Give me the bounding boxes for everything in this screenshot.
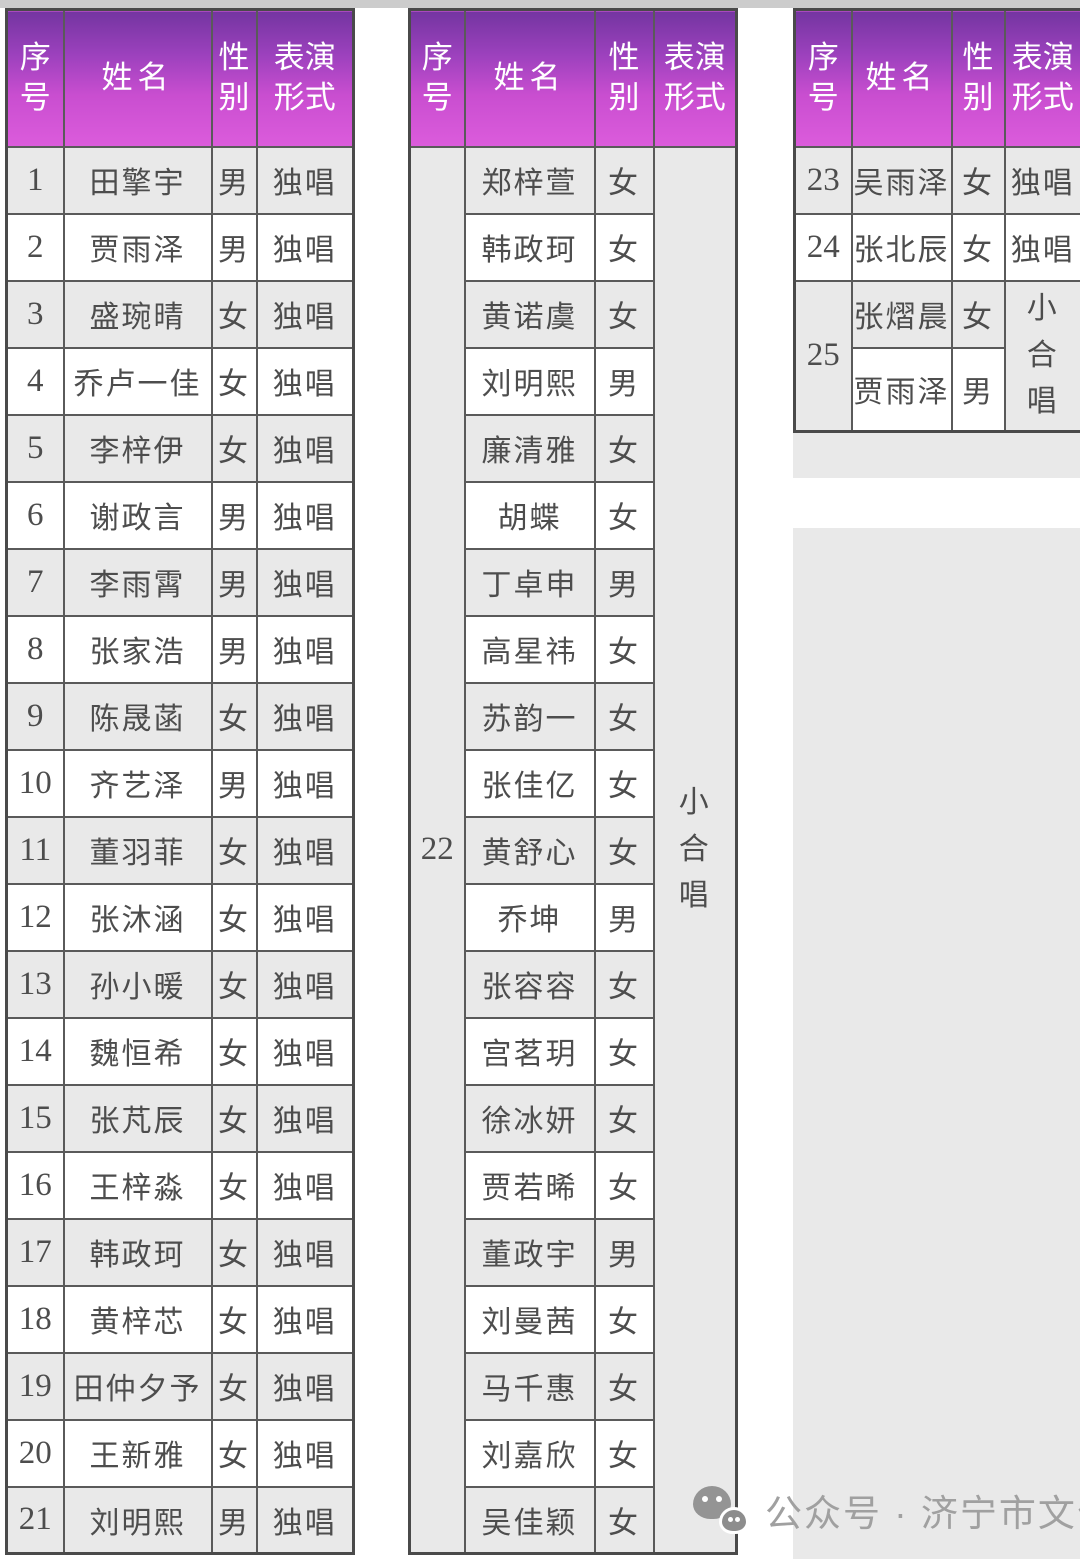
row-number: 15 [7, 1085, 64, 1152]
name-cell: 贾雨泽 [852, 348, 952, 432]
table-row: 11董羽菲女独唱 [7, 817, 354, 884]
gender-cell: 女 [952, 281, 1005, 348]
table-row: 13孙小暖女独唱 [7, 951, 354, 1018]
gender-cell: 女 [595, 1152, 654, 1219]
wechat-icon [693, 1484, 751, 1536]
gender-cell: 女 [595, 1085, 654, 1152]
name-cell: 黄舒心 [465, 817, 595, 884]
gender-cell: 女 [212, 1420, 257, 1487]
header-name: 姓名 [465, 10, 595, 147]
group-number: 22 [410, 147, 465, 1554]
header-form: 表演 形式 [257, 10, 354, 147]
gender-cell: 女 [212, 348, 257, 415]
name-cell: 马千惠 [465, 1353, 595, 1420]
row-number: 20 [7, 1420, 64, 1487]
empty-gray-block [793, 528, 1080, 1559]
name-cell: 徐冰妍 [465, 1085, 595, 1152]
header-name: 姓名 [852, 10, 952, 147]
row-number: 14 [7, 1018, 64, 1085]
gender-cell: 男 [212, 616, 257, 683]
row-number: 8 [7, 616, 64, 683]
form-cell: 独唱 [257, 549, 354, 616]
form-cell: 独唱 [257, 1152, 354, 1219]
header-gender: 性 别 [595, 10, 654, 147]
row-number: 9 [7, 683, 64, 750]
form-cell: 独唱 [257, 683, 354, 750]
row-number: 5 [7, 415, 64, 482]
roster-table-chorus-22: 序 号 姓名 性 别 表演 形式 22郑梓萱女小 合 唱韩政珂女黄诺虞女刘明熙男… [408, 8, 738, 1555]
gender-cell: 女 [595, 1353, 654, 1420]
form-cell: 小 合 唱 [1005, 281, 1080, 432]
wechat-bubble-small [719, 1507, 749, 1534]
row-number: 6 [7, 482, 64, 549]
form-cell: 小 合 唱 [654, 147, 737, 1554]
name-cell: 胡蝶 [465, 482, 595, 549]
name-cell: 乔卢一佳 [64, 348, 212, 415]
row-number: 17 [7, 1219, 64, 1286]
form-cell: 独唱 [257, 884, 354, 951]
row-number: 4 [7, 348, 64, 415]
name-cell: 郑梓萱 [465, 147, 595, 214]
gender-cell: 女 [595, 817, 654, 884]
table-row: 9陈晟菡女独唱 [7, 683, 354, 750]
table-row: 22郑梓萱女小 合 唱 [410, 147, 737, 214]
gender-cell: 女 [212, 281, 257, 348]
name-cell: 高星祎 [465, 616, 595, 683]
gender-cell: 女 [595, 1420, 654, 1487]
gender-cell: 女 [952, 214, 1005, 281]
name-cell: 李雨霄 [64, 549, 212, 616]
header-row: 序 号 姓名 性 别 表演 形式 [7, 10, 354, 147]
gender-cell: 女 [595, 750, 654, 817]
form-cell: 独唱 [1005, 214, 1080, 281]
form-cell: 独唱 [257, 750, 354, 817]
name-cell: 韩政珂 [465, 214, 595, 281]
table-header: 序 号 姓名 性 别 表演 形式 [795, 10, 1080, 147]
name-cell: 齐艺泽 [64, 750, 212, 817]
table-row: 23吴雨泽女独唱 [795, 147, 1080, 214]
table-row: 10齐艺泽男独唱 [7, 750, 354, 817]
name-cell: 贾雨泽 [64, 214, 212, 281]
row-number: 10 [7, 750, 64, 817]
gender-cell: 女 [212, 1286, 257, 1353]
form-cell: 独唱 [257, 415, 354, 482]
gender-cell: 女 [595, 1487, 654, 1554]
gender-cell: 女 [212, 1353, 257, 1420]
name-cell: 董羽菲 [64, 817, 212, 884]
form-cell: 独唱 [257, 817, 354, 884]
form-cell: 独唱 [257, 951, 354, 1018]
table-row: 2贾雨泽男独唱 [7, 214, 354, 281]
group-number: 25 [795, 281, 852, 432]
row-number: 11 [7, 817, 64, 884]
name-cell: 黄梓芯 [64, 1286, 212, 1353]
header-gender: 性 别 [212, 10, 257, 147]
gender-cell: 男 [212, 1487, 257, 1554]
gender-cell: 男 [212, 147, 257, 214]
form-cell: 独唱 [257, 281, 354, 348]
name-cell: 乔坤 [465, 884, 595, 951]
gender-cell: 女 [595, 683, 654, 750]
table-row: 16王梓淼女独唱 [7, 1152, 354, 1219]
name-cell: 张佳亿 [465, 750, 595, 817]
name-cell: 张沐涵 [64, 884, 212, 951]
table-row: 21刘明熙男独唱 [7, 1487, 354, 1554]
gender-cell: 女 [212, 951, 257, 1018]
form-cell: 独唱 [257, 1085, 354, 1152]
table-row: 5李梓伊女独唱 [7, 415, 354, 482]
name-cell: 黄诺虞 [465, 281, 595, 348]
gender-cell: 女 [952, 147, 1005, 214]
name-cell: 张北辰 [852, 214, 952, 281]
gender-cell: 女 [212, 1219, 257, 1286]
row-number: 12 [7, 884, 64, 951]
table-row: 8张家浩男独唱 [7, 616, 354, 683]
name-cell: 王梓淼 [64, 1152, 212, 1219]
name-cell: 王新雅 [64, 1420, 212, 1487]
table-row: 14魏恒希女独唱 [7, 1018, 354, 1085]
header-row: 序 号 姓名 性 别 表演 形式 [410, 10, 737, 147]
gender-cell: 男 [212, 750, 257, 817]
name-cell: 盛琬晴 [64, 281, 212, 348]
name-cell: 韩政珂 [64, 1219, 212, 1286]
table-row: 18黄梓芯女独唱 [7, 1286, 354, 1353]
name-cell: 张容容 [465, 951, 595, 1018]
table-row: 12张沐涵女独唱 [7, 884, 354, 951]
gender-cell: 女 [212, 1085, 257, 1152]
row-number: 2 [7, 214, 64, 281]
row-number: 18 [7, 1286, 64, 1353]
table-row: 25张熠晨女小 合 唱 [795, 281, 1080, 348]
form-cell: 独唱 [257, 1353, 354, 1420]
table-row: 15张芃辰女独唱 [7, 1085, 354, 1152]
gender-cell: 女 [212, 1152, 257, 1219]
gender-cell: 女 [595, 214, 654, 281]
row-number: 19 [7, 1353, 64, 1420]
row-number: 24 [795, 214, 852, 281]
name-cell: 廉清雅 [465, 415, 595, 482]
form-cell: 独唱 [257, 1286, 354, 1353]
form-cell: 独唱 [1005, 147, 1080, 214]
gender-cell: 男 [212, 549, 257, 616]
header-gender: 性 别 [952, 10, 1005, 147]
name-cell: 董政宇 [465, 1219, 595, 1286]
name-cell: 张熠晨 [852, 281, 952, 348]
gender-cell: 女 [595, 281, 654, 348]
table-row: 20王新雅女独唱 [7, 1420, 354, 1487]
gender-cell: 女 [212, 884, 257, 951]
roster-table-3: 序 号 姓名 性 别 表演 形式 23吴雨泽女独唱24张北辰女独唱25张熠晨女小… [793, 8, 1080, 433]
header-form: 表演 形式 [654, 10, 737, 147]
name-cell: 谢政言 [64, 482, 212, 549]
table-row: 17韩政珂女独唱 [7, 1219, 354, 1286]
name-cell: 贾若晞 [465, 1152, 595, 1219]
name-cell: 田仲夕予 [64, 1353, 212, 1420]
table-row: 6谢政言男独唱 [7, 482, 354, 549]
gender-cell: 女 [595, 951, 654, 1018]
table-header: 序 号 姓名 性 别 表演 形式 [7, 10, 354, 147]
row-number: 1 [7, 147, 64, 214]
header-no: 序 号 [795, 10, 852, 147]
gender-cell: 女 [595, 147, 654, 214]
roster-table-solo: 序 号 姓名 性 别 表演 形式 1田擎宇男独唱2贾雨泽男独唱3盛琬晴女独唱4乔… [5, 8, 355, 1555]
name-cell: 陈晟菡 [64, 683, 212, 750]
row-number: 13 [7, 951, 64, 1018]
form-cell: 独唱 [257, 147, 354, 214]
gender-cell: 女 [595, 616, 654, 683]
table-body: 22郑梓萱女小 合 唱韩政珂女黄诺虞女刘明熙男廉清雅女胡蝶女丁卓申男高星祎女苏韵… [410, 147, 737, 1554]
form-cell: 独唱 [257, 348, 354, 415]
top-edge-strip [0, 0, 1080, 8]
gender-cell: 女 [212, 1018, 257, 1085]
gender-cell: 男 [952, 348, 1005, 432]
watermark: 公众号 · 济宁市文化馆 [693, 1483, 1080, 1537]
header-row: 序 号 姓名 性 别 表演 形式 [795, 10, 1080, 147]
table-header: 序 号 姓名 性 别 表演 形式 [410, 10, 737, 147]
header-name: 姓名 [64, 10, 212, 147]
empty-gray-band [793, 433, 1080, 478]
gender-cell: 女 [212, 817, 257, 884]
form-cell: 独唱 [257, 1487, 354, 1554]
name-cell: 李梓伊 [64, 415, 212, 482]
gender-cell: 女 [595, 482, 654, 549]
name-cell: 宫茗玥 [465, 1018, 595, 1085]
table-row: 7李雨霄男独唱 [7, 549, 354, 616]
gender-cell: 男 [595, 549, 654, 616]
name-cell: 刘嘉欣 [465, 1420, 595, 1487]
gender-cell: 女 [595, 1286, 654, 1353]
gender-cell: 男 [595, 884, 654, 951]
header-no: 序 号 [7, 10, 64, 147]
name-cell: 刘曼茜 [465, 1286, 595, 1353]
name-cell: 张芃辰 [64, 1085, 212, 1152]
name-cell: 刘明熙 [465, 348, 595, 415]
row-number: 16 [7, 1152, 64, 1219]
header-form: 表演 形式 [1005, 10, 1080, 147]
gender-cell: 女 [595, 1018, 654, 1085]
watermark-text: 公众号 · 济宁市文化馆 [765, 1483, 1080, 1537]
gender-cell: 女 [212, 415, 257, 482]
table-row: 4乔卢一佳女独唱 [7, 348, 354, 415]
row-number: 21 [7, 1487, 64, 1554]
name-cell: 刘明熙 [64, 1487, 212, 1554]
form-cell: 独唱 [257, 1420, 354, 1487]
gender-cell: 男 [212, 482, 257, 549]
form-cell: 独唱 [257, 214, 354, 281]
gender-cell: 男 [212, 214, 257, 281]
form-cell: 独唱 [257, 616, 354, 683]
form-cell: 独唱 [257, 1219, 354, 1286]
name-cell: 丁卓申 [465, 549, 595, 616]
name-cell: 魏恒希 [64, 1018, 212, 1085]
form-cell: 独唱 [257, 482, 354, 549]
form-cell: 独唱 [257, 1018, 354, 1085]
row-number: 23 [795, 147, 852, 214]
table-row: 24张北辰女独唱 [795, 214, 1080, 281]
header-no: 序 号 [410, 10, 465, 147]
table-row: 3盛琬晴女独唱 [7, 281, 354, 348]
gender-cell: 女 [595, 415, 654, 482]
gender-cell: 男 [595, 348, 654, 415]
name-cell: 吴雨泽 [852, 147, 952, 214]
table-body: 1田擎宇男独唱2贾雨泽男独唱3盛琬晴女独唱4乔卢一佳女独唱5李梓伊女独唱6谢政言… [7, 147, 354, 1554]
name-cell: 张家浩 [64, 616, 212, 683]
gender-cell: 女 [212, 683, 257, 750]
name-cell: 孙小暖 [64, 951, 212, 1018]
row-number: 3 [7, 281, 64, 348]
table-body: 23吴雨泽女独唱24张北辰女独唱25张熠晨女小 合 唱贾雨泽男 [795, 147, 1080, 432]
name-cell: 吴佳颖 [465, 1487, 595, 1554]
name-cell: 苏韵一 [465, 683, 595, 750]
name-cell: 田擎宇 [64, 147, 212, 214]
row-number: 7 [7, 549, 64, 616]
gender-cell: 男 [595, 1219, 654, 1286]
table-row: 19田仲夕予女独唱 [7, 1353, 354, 1420]
table-row: 1田擎宇男独唱 [7, 147, 354, 214]
